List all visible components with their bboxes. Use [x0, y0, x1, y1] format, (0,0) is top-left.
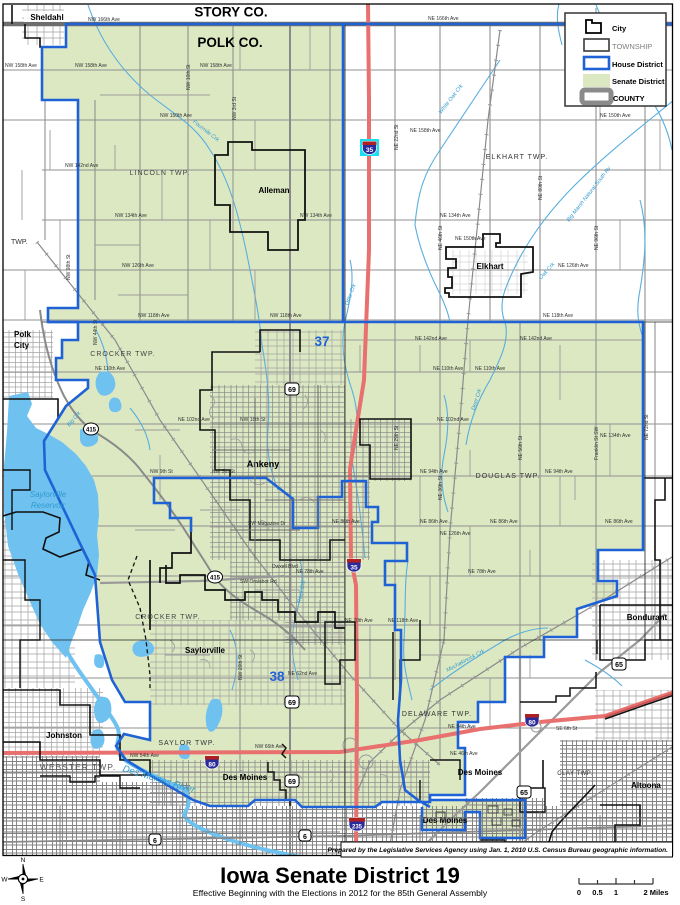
svg-text:NE 62nd Ave: NE 62nd Ave	[288, 671, 317, 677]
svg-text:NE 86th Ave: NE 86th Ave	[605, 519, 633, 525]
svg-text:69: 69	[288, 387, 296, 394]
svg-text:Altoona: Altoona	[631, 781, 661, 790]
svg-text:DELAWARE TWP.: DELAWARE TWP.	[402, 711, 472, 718]
svg-text:6: 6	[303, 834, 307, 841]
svg-text:37: 37	[314, 334, 329, 349]
svg-text:POLK CO.: POLK CO.	[197, 35, 262, 50]
svg-text:NE 46th Ave: NE 46th Ave	[450, 751, 478, 757]
svg-text:NW 134th Ave: NW 134th Ave	[300, 213, 332, 219]
svg-text:NE 94th Ave: NE 94th Ave	[420, 469, 448, 475]
svg-text:80: 80	[208, 762, 216, 769]
svg-text:NE 118th Ave: NE 118th Ave	[388, 618, 418, 624]
svg-text:Dwxell Blvd: Dwxell Blvd	[272, 564, 298, 570]
svg-text:City: City	[612, 24, 627, 33]
svg-text:NW 54th Ave: NW 54th Ave	[130, 753, 159, 759]
svg-text:NW 26th St: NW 26th St	[238, 654, 244, 680]
svg-text:NW 158th Ave: NW 158th Ave	[200, 63, 232, 69]
svg-text:NE 150th Ave: NE 150th Ave	[455, 236, 486, 242]
svg-text:Prepared by the Legislative Se: Prepared by the Legislative Services Age…	[327, 847, 668, 854]
svg-text:65: 65	[520, 790, 528, 797]
svg-text:NW 9th St: NW 9th St	[150, 469, 173, 475]
svg-text:NE 166th Ave: NE 166th Ave	[428, 16, 459, 22]
svg-text:NW 66th Ave: NW 66th Ave	[255, 744, 284, 750]
svg-text:NW 134th Ave: NW 134th Ave	[115, 213, 147, 219]
svg-text:NW 98th St: NW 98th St	[66, 254, 72, 280]
svg-text:STORY CO.: STORY CO.	[194, 5, 267, 20]
svg-text:City: City	[14, 341, 30, 350]
svg-text:69: 69	[288, 700, 296, 707]
svg-text:Des Moines: Des Moines	[423, 816, 468, 825]
svg-text:NE 86th Ave: NE 86th Ave	[420, 519, 448, 525]
svg-text:35: 35	[366, 147, 374, 154]
svg-text:NW 118th Ave: NW 118th Ave	[270, 313, 302, 319]
svg-text:N: N	[21, 857, 26, 864]
svg-text:NW 44th St: NW 44th St	[93, 319, 99, 345]
svg-text:NW 3rd St: NW 3rd St	[232, 96, 238, 120]
svg-text:WEBSTER TWP.: WEBSTER TWP.	[40, 762, 116, 772]
svg-text:Des Moines: Des Moines	[223, 773, 268, 782]
svg-text:NE 22nd St: NE 22nd St	[394, 124, 400, 150]
svg-text:NE 70th Ave: NE 70th Ave	[345, 618, 373, 624]
svg-text:Des Moines: Des Moines	[458, 768, 503, 777]
svg-text:NE 110th Ave: NE 110th Ave	[433, 366, 463, 372]
svg-text:415: 415	[210, 576, 221, 582]
svg-text:235: 235	[352, 825, 363, 831]
svg-text:NW 16th St: NW 16th St	[186, 64, 192, 90]
svg-text:NE 78th Ave: NE 78th Ave	[468, 569, 496, 575]
svg-text:65: 65	[615, 662, 623, 669]
svg-text:NW 158th Ave: NW 158th Ave	[75, 63, 107, 69]
svg-text:Effective Beginning with the E: Effective Beginning with the Elections i…	[193, 888, 488, 898]
svg-text:NW 5th St: NW 5th St	[212, 469, 235, 475]
svg-text:NE 142nd Ave: NE 142nd Ave	[520, 336, 552, 342]
svg-text:0.5: 0.5	[592, 888, 602, 897]
svg-text:NE 78th Ave: NE 78th Ave	[296, 569, 324, 575]
svg-text:Senate District: Senate District	[612, 77, 665, 86]
svg-text:NW 150th Ave: NW 150th Ave	[160, 113, 192, 119]
svg-text:TOWNSHIP: TOWNSHIP	[612, 42, 652, 51]
svg-text:Franklin St SW: Franklin St SW	[594, 426, 600, 460]
svg-text:415: 415	[86, 428, 97, 434]
svg-text:S: S	[21, 896, 26, 903]
svg-text:NE 150th Ave: NE 150th Ave	[600, 113, 631, 119]
svg-text:NE 86th Ave: NE 86th Ave	[490, 519, 518, 525]
svg-text:NE 158th Ave: NE 158th Ave	[410, 128, 441, 134]
svg-text:NE 118th Ave: NE 118th Ave	[543, 313, 573, 319]
svg-text:DOUGLAS TWP.: DOUGLAS TWP.	[476, 473, 541, 480]
svg-text:NW 158th Ave: NW 158th Ave	[5, 63, 37, 69]
svg-text:Iowa Senate District 19: Iowa Senate District 19	[220, 863, 460, 888]
svg-text:NE 126th Ave: NE 126th Ave	[440, 531, 471, 537]
svg-text:COUNTY: COUNTY	[613, 94, 645, 103]
svg-text:NE 102nd Ave: NE 102nd Ave	[437, 417, 469, 423]
svg-text:Bondurant: Bondurant	[627, 613, 668, 622]
svg-text:NE 46th St: NE 46th St	[438, 225, 444, 250]
svg-text:NE 86th Ave: NE 86th Ave	[332, 519, 360, 525]
svg-text:NE 54th Ave: NE 54th Ave	[448, 724, 476, 730]
svg-text:Sheldahl: Sheldahl	[30, 13, 63, 22]
svg-text:SE 6th St: SE 6th St	[556, 726, 578, 732]
svg-text:69: 69	[288, 779, 296, 786]
svg-text:E: E	[39, 877, 44, 884]
svg-text:NE 110th Ave: NE 110th Ave	[95, 366, 125, 372]
svg-text:CROCKER TWP.: CROCKER TWP.	[90, 351, 155, 358]
svg-text:Johnston: Johnston	[46, 731, 82, 740]
svg-text:NE 36th St: NE 36th St	[438, 475, 444, 500]
svg-text:NE 142nd Ave: NE 142nd Ave	[415, 336, 447, 342]
svg-text:NW 166th Ave: NW 166th Ave	[88, 17, 120, 23]
svg-text:6: 6	[153, 838, 157, 845]
svg-text:0: 0	[577, 888, 581, 897]
svg-text:NE 96th St: NE 96th St	[594, 225, 600, 250]
svg-text:SAYLOR TWP.: SAYLOR TWP.	[158, 740, 215, 747]
svg-text:Saylorville: Saylorville	[30, 490, 67, 499]
svg-text:Ankeny: Ankeny	[247, 459, 280, 469]
svg-text:CROCKER TWP.: CROCKER TWP.	[135, 614, 200, 621]
svg-text:NE 126th Ave: NE 126th Ave	[558, 263, 589, 269]
svg-text:NW 118th Ave: NW 118th Ave	[138, 313, 170, 319]
svg-text:NE 80th St: NE 80th St	[538, 175, 544, 200]
svg-text:Alleman: Alleman	[258, 186, 289, 195]
svg-text:NE 110th Ave: NE 110th Ave	[475, 366, 505, 372]
svg-text:NE 102nd Ave: NE 102nd Ave	[178, 417, 210, 423]
svg-text:Saylorville: Saylorville	[185, 646, 226, 655]
svg-text:Elkhart: Elkhart	[476, 262, 503, 271]
svg-text:NW 142nd Ave: NW 142nd Ave	[65, 163, 98, 169]
svg-text:NE 72nd St: NE 72nd St	[644, 414, 650, 440]
svg-text:NE 134th Ave: NE 134th Ave	[440, 213, 471, 219]
svg-text:CLAY TWP.: CLAY TWP.	[557, 771, 592, 777]
svg-text:SW Magazine Dr: SW Magazine Dr	[248, 521, 286, 527]
svg-text:NE 29th St: NE 29th St	[394, 425, 400, 450]
svg-text:38: 38	[269, 669, 285, 684]
svg-text:SW Oralabor Rd: SW Oralabor Rd	[240, 579, 277, 585]
svg-text:35: 35	[350, 565, 358, 572]
svg-text:NE 134th Ave: NE 134th Ave	[600, 433, 631, 439]
svg-text:ELKHART TWP.: ELKHART TWP.	[486, 154, 548, 161]
svg-text:LINCOLN TWP.: LINCOLN TWP.	[130, 170, 191, 177]
svg-text:NE 56th St: NE 56th St	[518, 435, 524, 460]
svg-text:Polk: Polk	[14, 330, 31, 339]
svg-text:NW 126th Ave: NW 126th Ave	[122, 263, 154, 269]
svg-text:W: W	[1, 877, 8, 884]
svg-text:2 Miles: 2 Miles	[643, 888, 668, 897]
svg-text:80: 80	[528, 720, 536, 727]
svg-text:House District: House District	[612, 60, 663, 69]
svg-text:NE 94th Ave: NE 94th Ave	[545, 469, 573, 475]
svg-text:NW 18th St: NW 18th St	[240, 417, 266, 423]
svg-text:1: 1	[614, 888, 618, 897]
svg-text:TWP.: TWP.	[11, 239, 28, 246]
svg-text:Reservoir: Reservoir	[31, 501, 66, 510]
